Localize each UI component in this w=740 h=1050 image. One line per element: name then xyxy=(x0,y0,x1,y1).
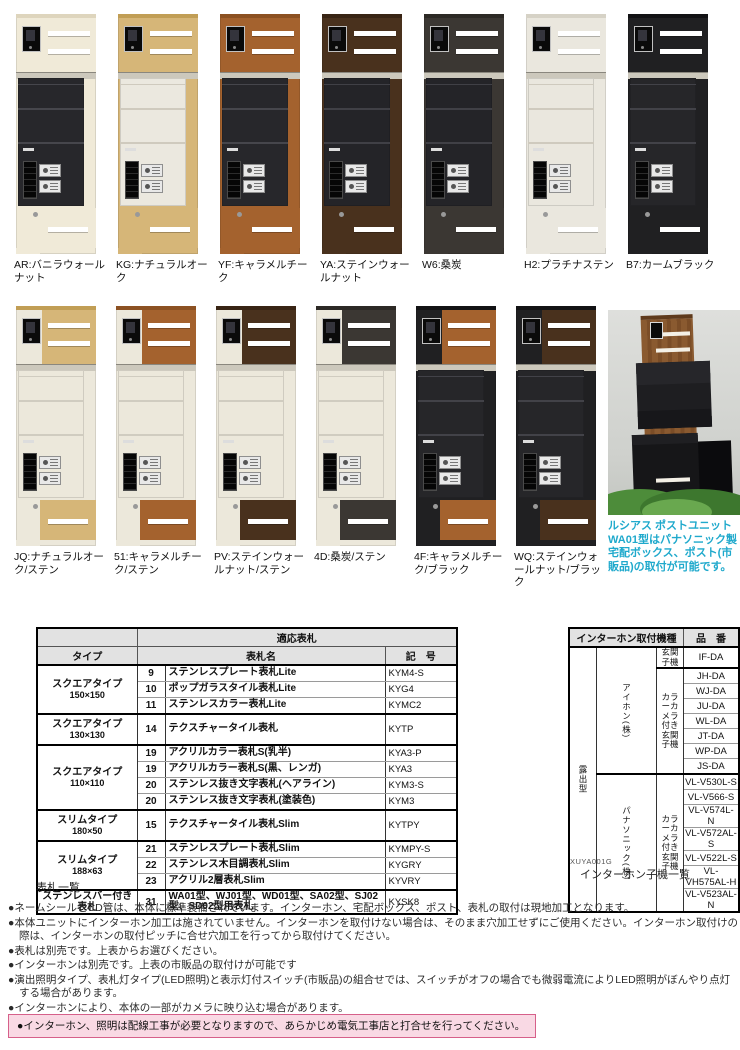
footnote: ●演出照明タイプ、表札灯タイプ(LED照明)と表示灯付スイッチ(市販品)の組合せ… xyxy=(8,974,738,1001)
post-and-delivery-box xyxy=(218,370,284,498)
box-divider xyxy=(18,434,84,436)
slat-opening xyxy=(148,323,190,328)
post-and-delivery-box xyxy=(518,370,584,498)
color-variant-cell: 51:キャラメルチーク/ステン xyxy=(108,306,208,589)
box-label xyxy=(227,148,238,151)
mail-flap-seam xyxy=(418,400,484,402)
post-and-delivery-box xyxy=(630,78,696,206)
post-unit-illustration xyxy=(416,306,496,546)
table-row: スクエアタイプ110×110 19 アクリルカラー表札S(乳半) KYA3-P xyxy=(37,745,457,762)
mail-flap-seam xyxy=(18,400,84,402)
name-cell: アクリルカラー表札S(黒、レンガ) xyxy=(165,762,385,778)
color-code-label: JQ:ナチュラルオーク/ステン xyxy=(14,551,108,576)
pillar-leg xyxy=(322,248,346,254)
wood-panel-top xyxy=(442,310,496,364)
intercom-type-cell: 玄関子機 xyxy=(657,647,684,668)
post-unit-illustration xyxy=(118,14,198,254)
keypad xyxy=(636,162,648,198)
dial-lock xyxy=(539,472,561,485)
slat-opening xyxy=(48,519,88,524)
pillar-leg xyxy=(116,540,140,546)
maker-cell: アイホン(株) xyxy=(596,647,657,774)
color-code-label: WQ:ステインウォールナット/ブラック xyxy=(514,551,608,589)
box-label xyxy=(125,148,136,151)
color-code-label: 4D:桑炭/ステン xyxy=(314,551,408,564)
pillar-leg xyxy=(516,540,540,546)
slat-opening xyxy=(548,323,590,328)
lid-seam xyxy=(222,84,288,85)
keypad xyxy=(24,454,36,490)
post-unit-illustration xyxy=(628,14,708,254)
footnote: ●インターホンにより、本体の一部がカメラに映り込む場合があります。 xyxy=(8,1002,738,1016)
intercom-type-cell: カラーカメラ付き玄関子機 xyxy=(657,774,684,912)
model-cell: JU-DA xyxy=(683,699,739,714)
slat-opening xyxy=(148,519,188,524)
model-cell: JS-DA xyxy=(683,759,739,775)
pillar-leg xyxy=(526,248,550,254)
keyhole xyxy=(339,212,344,217)
mail-flap-seam xyxy=(120,108,186,110)
slat-opening xyxy=(48,31,90,36)
keyhole xyxy=(237,212,242,217)
warning-box: ●インターホン、照明は配線工事が必要となりますので、あらかじめ電気工事店と打合せ… xyxy=(8,1014,536,1038)
intercom-module xyxy=(226,26,245,52)
color-variant-cell: KG:ナチュラルオーク xyxy=(110,14,212,284)
name-cell: ステンレス抜き文字表札(ヘアライン) xyxy=(165,778,385,794)
model-cell: VL-V530L-S xyxy=(683,774,739,790)
dial-lock xyxy=(549,164,571,177)
reference-code: XUYA001G xyxy=(570,857,612,866)
slat-opening xyxy=(252,31,294,36)
dial-lock xyxy=(439,472,461,485)
keyhole xyxy=(441,212,446,217)
post-and-delivery-box xyxy=(222,78,288,206)
lid-seam xyxy=(418,376,484,377)
dial-lock xyxy=(539,456,561,469)
post-and-delivery-box xyxy=(18,78,84,206)
lid-seam xyxy=(218,376,284,377)
box-divider xyxy=(630,142,696,144)
no-cell: 19 xyxy=(137,745,165,762)
intercom-header-left: インターホン取付機種 xyxy=(569,628,683,647)
color-variant-cell: PV:ステインウォールナット/ステン xyxy=(208,306,308,589)
slat-opening xyxy=(558,227,598,232)
post-and-delivery-box xyxy=(418,370,484,498)
color-variant-cell: JQ:ナチュラルオーク/ステン xyxy=(8,306,108,589)
no-cell: 15 xyxy=(137,810,165,841)
lid-seam xyxy=(324,84,390,85)
slat-opening xyxy=(548,519,588,524)
intercom-type-cell: カラーカメラ付き玄関子機 xyxy=(657,668,684,774)
color-code-label: KG:ナチュラルオーク xyxy=(116,259,210,284)
box-label xyxy=(533,148,544,151)
footnote: ●ネームシールとCD管は、本体に標準装備されています。インターホン、宅配ボックス… xyxy=(8,902,738,916)
color-variants-row-1: AR:バニラウォールナット xyxy=(8,14,722,284)
dial-lock xyxy=(139,456,161,469)
code-cell: KYA3-P xyxy=(385,745,457,762)
span-header: 適応表札 xyxy=(137,628,457,647)
keyhole xyxy=(333,504,338,509)
slat-opening xyxy=(348,519,388,524)
name-cell: テクスチャータイル表札Slim xyxy=(165,810,385,841)
no-cell: 9 xyxy=(137,665,165,682)
color-code-label: B7:カームブラック xyxy=(626,259,720,272)
keyhole xyxy=(133,504,138,509)
table-row: スクエアタイプ150×150 9 ステンレスプレート表札Lite KYM4-S xyxy=(37,665,457,682)
dial-lock xyxy=(447,180,469,193)
keypad xyxy=(534,162,546,198)
dial-lock xyxy=(39,472,61,485)
color-code-label: H2:プラチナステン xyxy=(524,259,618,272)
lid-seam xyxy=(426,84,492,85)
keypad xyxy=(330,162,342,198)
wood-panel-top xyxy=(142,310,196,364)
type-cell: スクエアタイプ110×110 xyxy=(37,745,137,810)
pillar-leg xyxy=(216,540,240,546)
dial-lock xyxy=(651,164,673,177)
product-photo-cell: ルシアス ポストユニットWA01型はパナソニック製宅配ボックス、ポスト(市販品)… xyxy=(608,306,740,589)
product-photo xyxy=(608,310,740,515)
wood-panel-top xyxy=(342,310,396,364)
color-variant-cell: W6:桑炭 xyxy=(416,14,518,284)
slat-opening xyxy=(248,519,288,524)
mail-flap-seam xyxy=(324,108,390,110)
box-divider xyxy=(426,142,492,144)
box-label xyxy=(223,440,234,443)
color-code-label: PV:ステインウォールナット/ステン xyxy=(214,551,308,576)
color-variant-cell: WQ:ステインウォールナット/ブラック xyxy=(508,306,608,589)
color-variant-cell: AR:バニラウォールナット xyxy=(8,14,110,284)
footnotes: ●ネームシールとCD管は、本体に標準装備されています。インターホン、宅配ボックス… xyxy=(8,902,738,1016)
color-variant-cell: B7:カームブラック xyxy=(620,14,722,284)
keyhole xyxy=(33,504,38,509)
slat-opening xyxy=(660,49,702,54)
keypad xyxy=(424,454,436,490)
dial-lock xyxy=(239,456,261,469)
type-cell: スクエアタイプ150×150 xyxy=(37,665,137,714)
post-unit-illustration xyxy=(316,306,396,546)
dial-lock xyxy=(243,180,265,193)
slat-opening xyxy=(48,227,88,232)
name-cell: ポップガラスタイル表札Lite xyxy=(165,682,385,698)
slat-opening xyxy=(558,31,600,36)
dial-lock xyxy=(345,180,367,193)
keypad xyxy=(24,162,36,198)
slat-opening xyxy=(348,341,390,346)
code-cell: KYA3 xyxy=(385,762,457,778)
color-variant-cell: 4F:キャラメルチーク/ブラック xyxy=(408,306,508,589)
lid-seam xyxy=(18,84,84,85)
post-and-delivery-box xyxy=(528,78,594,206)
slat-opening xyxy=(456,49,498,54)
col-header-type: タイプ xyxy=(37,647,137,666)
box-label xyxy=(423,440,434,443)
intercom-module xyxy=(634,26,653,52)
model-cell: WP-DA xyxy=(683,744,739,759)
wood-panel-top xyxy=(542,310,596,364)
mail-flap-seam xyxy=(218,400,284,402)
model-cell: JH-DA xyxy=(683,668,739,684)
dial-lock xyxy=(339,456,361,469)
dial-lock xyxy=(239,472,261,485)
no-cell: 10 xyxy=(137,682,165,698)
wood-panel-top xyxy=(42,18,96,72)
box-divider xyxy=(318,434,384,436)
lid-seam xyxy=(318,376,384,377)
catalog-page: AR:バニラウォールナット xyxy=(0,0,740,1050)
keyhole xyxy=(433,504,438,509)
slat-opening xyxy=(48,341,90,346)
slat-opening xyxy=(354,227,394,232)
box-label xyxy=(23,440,34,443)
dial-lock xyxy=(339,472,361,485)
name-cell: アクリルカラー表札S(乳半) xyxy=(165,745,385,762)
keyhole xyxy=(233,504,238,509)
model-cell: WL-DA xyxy=(683,714,739,729)
model-cell: JT-DA xyxy=(683,729,739,744)
post-and-delivery-box xyxy=(18,370,84,498)
no-cell: 21 xyxy=(137,841,165,858)
mail-flap-seam xyxy=(318,400,384,402)
table-row: 露出型 アイホン(株) 玄関子機 IF-DA xyxy=(569,647,739,668)
intercom-header-right: 品 番 xyxy=(683,628,739,647)
mail-flap-seam xyxy=(426,108,492,110)
mail-flap-seam xyxy=(18,108,84,110)
photo-caption: ルシアス ポストユニットWA01型はパナソニック製宅配ボックス、ポスト(市販品)… xyxy=(608,520,740,574)
nameplate-table: 適応表札 タイプ 表札名 記 号 スクエアタイプ150×150 9 ステンレスプ… xyxy=(36,627,458,915)
box-divider xyxy=(120,142,186,144)
mail-flap-seam xyxy=(222,108,288,110)
pillar-leg xyxy=(220,248,244,254)
code-cell: KYG4 xyxy=(385,682,457,698)
slat-opening xyxy=(558,49,600,54)
slat-opening xyxy=(448,323,490,328)
slat-opening xyxy=(456,31,498,36)
box-label xyxy=(23,148,34,151)
pillar-leg xyxy=(16,540,40,546)
dial-lock xyxy=(243,164,265,177)
keypad xyxy=(228,162,240,198)
photo-intercom xyxy=(650,322,663,339)
keypad xyxy=(524,454,536,490)
slat-opening xyxy=(354,31,396,36)
slat-opening xyxy=(248,323,290,328)
keyhole xyxy=(645,212,650,217)
intercom-module xyxy=(430,26,449,52)
wood-panel-top xyxy=(144,18,198,72)
footnote: ●本体ユニットにインターホン加工は施されていません。インターホンを取付けない場合… xyxy=(8,917,738,944)
pillar-leg xyxy=(316,540,340,546)
code-cell: KYTPY xyxy=(385,810,457,841)
box-label xyxy=(329,148,340,151)
photo-post-box xyxy=(636,361,712,430)
nameplate-table-caption: 表札一覧 xyxy=(36,879,80,895)
code-cell: KYM3-S xyxy=(385,778,457,794)
lid-seam xyxy=(18,376,84,377)
footnote: ●インターホンは別売です。上表の市販品の取付けが可能です xyxy=(8,959,738,973)
slat-opening xyxy=(448,341,490,346)
color-code-label: 4F:キャラメルチーク/ブラック xyxy=(414,551,508,576)
slat-opening xyxy=(660,227,700,232)
keypad xyxy=(126,162,138,198)
keyhole xyxy=(543,212,548,217)
lid-seam xyxy=(630,84,696,85)
wood-panel-top xyxy=(242,310,296,364)
keypad xyxy=(224,454,236,490)
dial-lock xyxy=(549,180,571,193)
slat-opening xyxy=(252,227,292,232)
no-cell: 14 xyxy=(137,714,165,745)
name-cell: ステンレスカラー表札Lite xyxy=(165,698,385,715)
footnote: ●表札は別売です。上表からお選びください。 xyxy=(8,945,738,959)
color-code-label: 51:キャラメルチーク/ステン xyxy=(114,551,208,576)
model-cell: VL-V574L-N xyxy=(683,805,739,828)
post-and-delivery-box xyxy=(118,370,184,498)
name-cell: ステンレス抜き文字表札(塗装色) xyxy=(165,794,385,811)
pillar-leg xyxy=(16,248,40,254)
color-code-label: YA:ステインウォールナット xyxy=(320,259,414,284)
keypad xyxy=(324,454,336,490)
post-and-delivery-box xyxy=(324,78,390,206)
box-label xyxy=(635,148,646,151)
post-unit-illustration xyxy=(116,306,196,546)
post-unit-illustration xyxy=(16,306,96,546)
color-code-label: W6:桑炭 xyxy=(422,259,516,272)
slat-opening xyxy=(348,323,390,328)
post-unit-illustration xyxy=(16,14,96,254)
keyhole xyxy=(33,212,38,217)
color-variant-cell: YA:ステインウォールナット xyxy=(314,14,416,284)
intercom-module xyxy=(532,26,551,52)
table-row: スクエアタイプ130×130 14 テクスチャータイル表札 KYTP xyxy=(37,714,457,745)
code-cell: KYVRY xyxy=(385,874,457,891)
lid-seam xyxy=(118,376,184,377)
code-cell: KYMC2 xyxy=(385,698,457,715)
intercom-module xyxy=(328,26,347,52)
post-unit-illustration xyxy=(220,14,300,254)
type-cell: スリムタイプ180×50 xyxy=(37,810,137,841)
slat-opening xyxy=(248,341,290,346)
wood-panel-top xyxy=(246,18,300,72)
mail-flap-seam xyxy=(118,400,184,402)
intercom-table-caption: インターホン子機一覧 xyxy=(580,866,690,882)
code-cell: KYTP xyxy=(385,714,457,745)
type-cell: スクエアタイプ130×130 xyxy=(37,714,137,745)
mail-flap-seam xyxy=(528,108,594,110)
intercom-module xyxy=(422,318,441,344)
intercom-module xyxy=(522,318,541,344)
post-and-delivery-box xyxy=(120,78,186,206)
post-unit-illustration xyxy=(216,306,296,546)
no-cell: 20 xyxy=(137,794,165,811)
dial-lock xyxy=(141,180,163,193)
mail-flap-seam xyxy=(518,400,584,402)
slat-opening xyxy=(150,227,190,232)
box-label xyxy=(123,440,134,443)
slat-opening xyxy=(48,49,90,54)
dial-lock xyxy=(651,180,673,193)
pillar-leg xyxy=(628,248,652,254)
no-cell: 20 xyxy=(137,778,165,794)
pillar-leg xyxy=(424,248,448,254)
slat-opening xyxy=(252,49,294,54)
keypad xyxy=(124,454,136,490)
color-variant-cell: 4D:桑炭/ステン xyxy=(308,306,408,589)
name-cell: ステンレス木目調表札Slim xyxy=(165,858,385,874)
slat-opening xyxy=(548,341,590,346)
box-divider xyxy=(118,434,184,436)
color-code-label: AR:バニラウォールナット xyxy=(14,259,108,284)
wood-panel-top xyxy=(654,18,708,72)
slat-opening xyxy=(660,31,702,36)
code-cell: KYGRY xyxy=(385,858,457,874)
name-cell: ステンレスプレート表札Lite xyxy=(165,665,385,682)
nameplate-table-wrap: 適応表札 タイプ 表札名 記 号 スクエアタイプ150×150 9 ステンレスプ… xyxy=(36,627,458,915)
no-cell: 19 xyxy=(137,762,165,778)
box-divider xyxy=(222,142,288,144)
intercom-module xyxy=(322,318,341,344)
model-cell: VL-V522L-S xyxy=(683,851,739,866)
dial-lock xyxy=(39,180,61,193)
box-divider xyxy=(518,434,584,436)
intercom-module xyxy=(222,318,241,344)
table-row: スリムタイプ180×50 15 テクスチャータイル表札Slim KYTPY xyxy=(37,810,457,841)
mail-flap-seam xyxy=(630,108,696,110)
wood-panel-top xyxy=(552,18,606,72)
intercom-module xyxy=(22,26,41,52)
color-code-label: YF:キャラメルチーク xyxy=(218,259,312,284)
model-cell: WJ-DA xyxy=(683,684,739,699)
name-cell: テクスチャータイル表札 xyxy=(165,714,385,745)
color-variants-row-2: JQ:ナチュラルオーク/ステン xyxy=(8,306,740,589)
intercom-module xyxy=(22,318,41,344)
box-divider xyxy=(324,142,390,144)
box-label xyxy=(523,440,534,443)
maker-cell: パナソニック(株) xyxy=(596,774,657,912)
dial-lock xyxy=(139,472,161,485)
code-cell: KYM4-S xyxy=(385,665,457,682)
box-divider xyxy=(18,142,84,144)
post-unit-illustration xyxy=(516,306,596,546)
wood-panel-top xyxy=(450,18,504,72)
color-variant-cell: H2:プラチナステン xyxy=(518,14,620,284)
slat-opening xyxy=(456,227,496,232)
slat-opening xyxy=(48,323,90,328)
name-cell: アクリル2層表札Slim xyxy=(165,874,385,891)
slat-opening xyxy=(448,519,488,524)
name-cell: ステンレスプレート表札Slim xyxy=(165,841,385,858)
slat-opening xyxy=(150,31,192,36)
keyhole xyxy=(533,504,538,509)
code-cell: KYM3 xyxy=(385,794,457,811)
slat-opening xyxy=(354,49,396,54)
wood-panel-top xyxy=(42,310,96,364)
box-label xyxy=(431,148,442,151)
dial-lock xyxy=(439,456,461,469)
keyhole xyxy=(135,212,140,217)
wood-panel-top xyxy=(348,18,402,72)
lid-seam xyxy=(518,376,584,377)
model-cell: IF-DA xyxy=(683,647,739,668)
box-divider xyxy=(528,142,594,144)
pillar-leg xyxy=(416,540,440,546)
model-cell: VL-V566-S xyxy=(683,790,739,805)
slat-opening xyxy=(150,49,192,54)
box-label xyxy=(323,440,334,443)
intercom-module xyxy=(122,318,141,344)
table-row: スリムタイプ188×63 21 ステンレスプレート表札Slim KYMPY-S xyxy=(37,841,457,858)
post-and-delivery-box xyxy=(426,78,492,206)
